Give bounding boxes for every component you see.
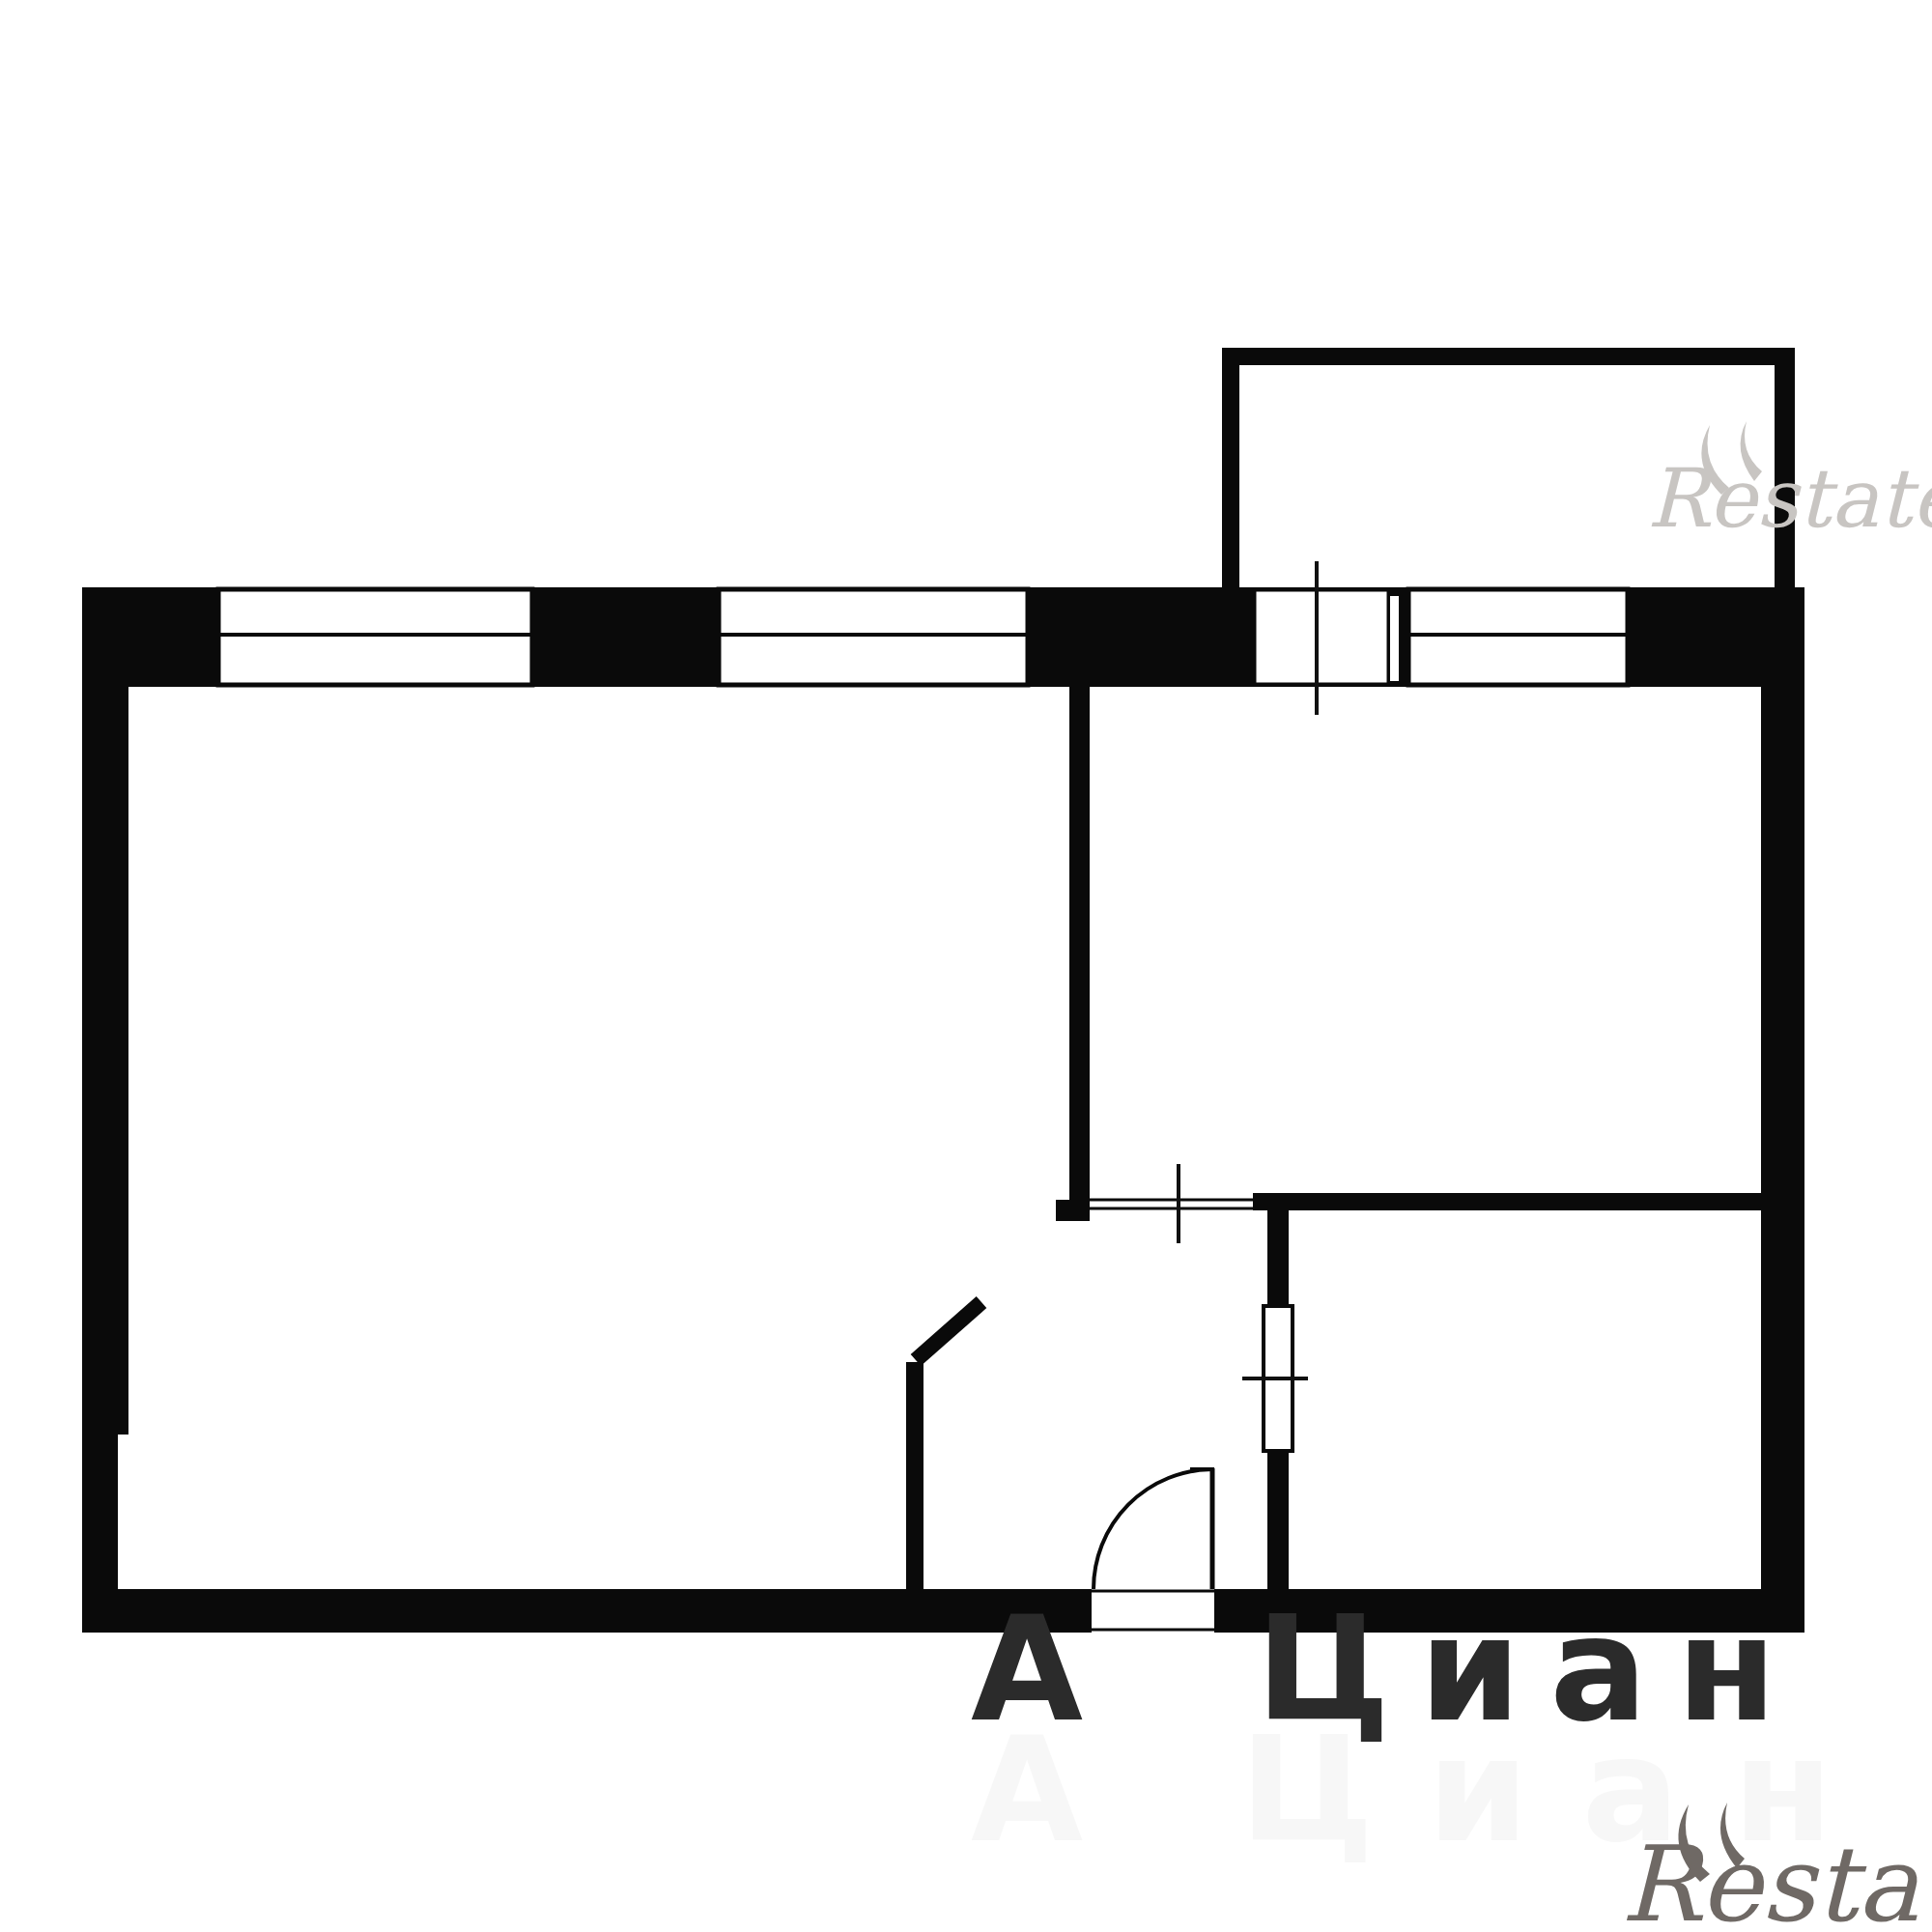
partition-left-room-foot (1056, 1200, 1090, 1221)
entrance-opening (1092, 1589, 1214, 1633)
left-wall-upper (82, 587, 128, 1435)
right-wall (1761, 587, 1804, 1633)
partition-left-room (1069, 687, 1090, 1200)
floor-plan-canvas: А Циан А Циан Restate Restate (0, 0, 1932, 1932)
restate-top-text: Restate (1647, 451, 1932, 546)
windows (218, 589, 1628, 685)
window-center (719, 589, 1028, 685)
stub-wall (906, 1362, 923, 1589)
window-left (218, 589, 532, 685)
balcony-left-wall (1222, 365, 1239, 587)
floor-plan-page: А Циан А Циан Restate Restate (0, 0, 1932, 1932)
balcony-door-jamb-sliver (1390, 596, 1399, 681)
restate-bottom-text: Restate (1621, 1824, 1932, 1932)
partition-room-divider-horizontal (1253, 1193, 1761, 1210)
balcony-door-opening (1255, 590, 1388, 684)
window-right (1408, 589, 1628, 685)
balcony-top-wall (1222, 348, 1795, 365)
